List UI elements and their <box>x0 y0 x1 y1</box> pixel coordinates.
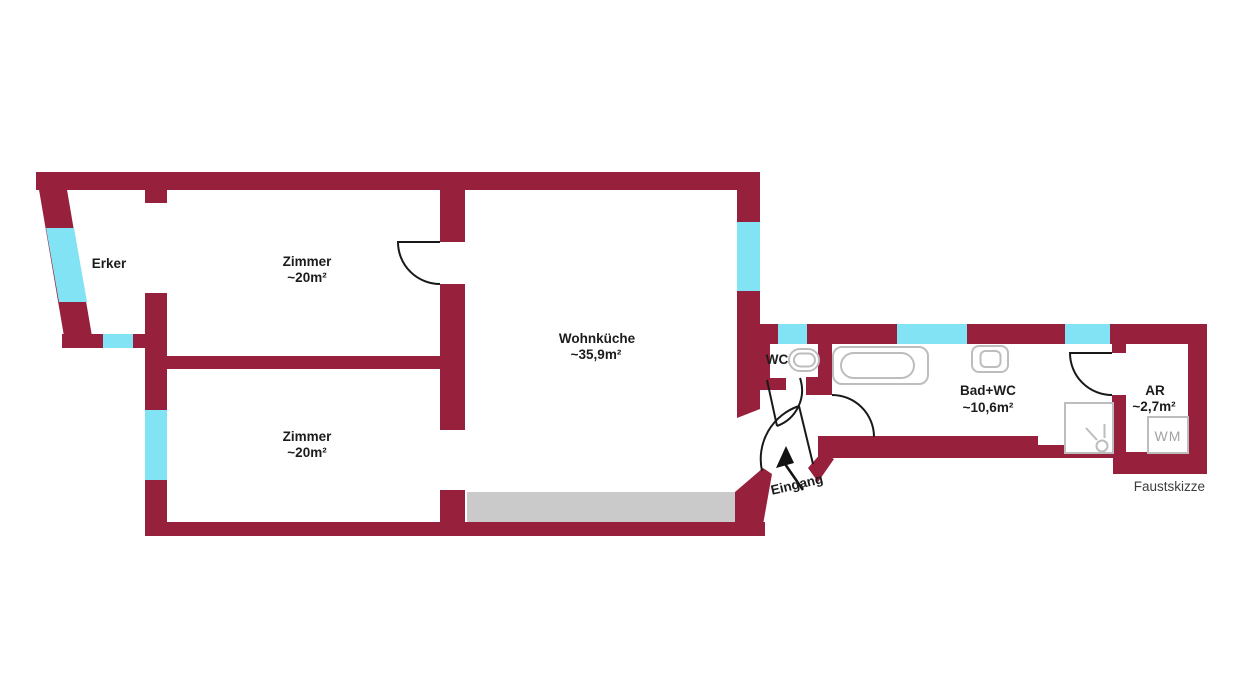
bathtub <box>833 347 928 384</box>
wall-top-main <box>36 172 760 190</box>
sink <box>972 346 1008 372</box>
label-ar-name: AR <box>1145 383 1165 398</box>
wall-bottom-main <box>145 522 765 536</box>
window-wohnkueche-right <box>737 222 760 291</box>
label-zimmer1-name: Zimmer <box>283 254 333 269</box>
door-zimmer1 <box>398 242 440 284</box>
counter-strip <box>467 492 735 522</box>
label-erker: Erker <box>92 256 127 271</box>
wall-ar-bottom <box>1113 452 1207 474</box>
wall-ar-left-top <box>1112 344 1126 353</box>
wall-between-zimmer <box>167 356 440 369</box>
label-zimmer2-name: Zimmer <box>283 429 333 444</box>
wall-wohnkueche-corner <box>735 468 772 536</box>
wall-divider-mid <box>440 284 465 430</box>
wall-bad-bottom <box>818 436 1038 458</box>
wall-ar-left-bottom <box>1112 395 1126 452</box>
label-faustskizze: Faustskizze <box>1134 479 1205 494</box>
label-wohnkueche-name: Wohnküche <box>559 331 636 346</box>
window-bad-top <box>897 324 967 344</box>
toilet <box>789 349 819 371</box>
window-ar-top <box>1065 324 1110 344</box>
label-eingang: Eingang <box>769 471 824 498</box>
wall-wc-right <box>818 337 832 377</box>
wall-wing-right <box>1188 324 1207 474</box>
label-wohnkueche-area: ~35,9m² <box>571 347 622 362</box>
window-wc-top <box>778 324 807 344</box>
floor-plan-sketch: WM Erker Zimmer ~20m² Zimmer ~20m² Wohnk… <box>0 0 1236 700</box>
door-bad <box>832 395 874 437</box>
shower <box>1065 403 1113 453</box>
label-zimmer1-area: ~20m² <box>287 270 327 285</box>
wall-wc-left-foot <box>770 378 786 390</box>
label-bad-area: ~10,6m² <box>963 400 1014 415</box>
window-erker-bottom <box>103 334 133 348</box>
door-ar <box>1070 353 1112 395</box>
label-zimmer2-area: ~20m² <box>287 445 327 460</box>
wall-divider-upper <box>440 190 465 242</box>
wall-wc-right-foot <box>806 377 832 395</box>
window-zimmer2-left <box>145 410 167 480</box>
shower-head-icon <box>1097 441 1108 452</box>
wall-wohnkueche-right <box>737 183 760 403</box>
wall-erker-top-stub <box>145 188 167 203</box>
label-bad-name: Bad+WC <box>960 383 1016 398</box>
walls <box>36 172 1207 536</box>
room-labels: Erker Zimmer ~20m² Zimmer ~20m² Wohnküch… <box>92 254 1176 498</box>
floor-plan-canvas: WM Erker Zimmer ~20m² Zimmer ~20m² Wohnk… <box>0 0 1236 700</box>
label-ar-area: ~2,7m² <box>1132 399 1176 414</box>
label-wc: WC <box>766 352 789 367</box>
washing-machine-label: WM <box>1155 428 1182 444</box>
